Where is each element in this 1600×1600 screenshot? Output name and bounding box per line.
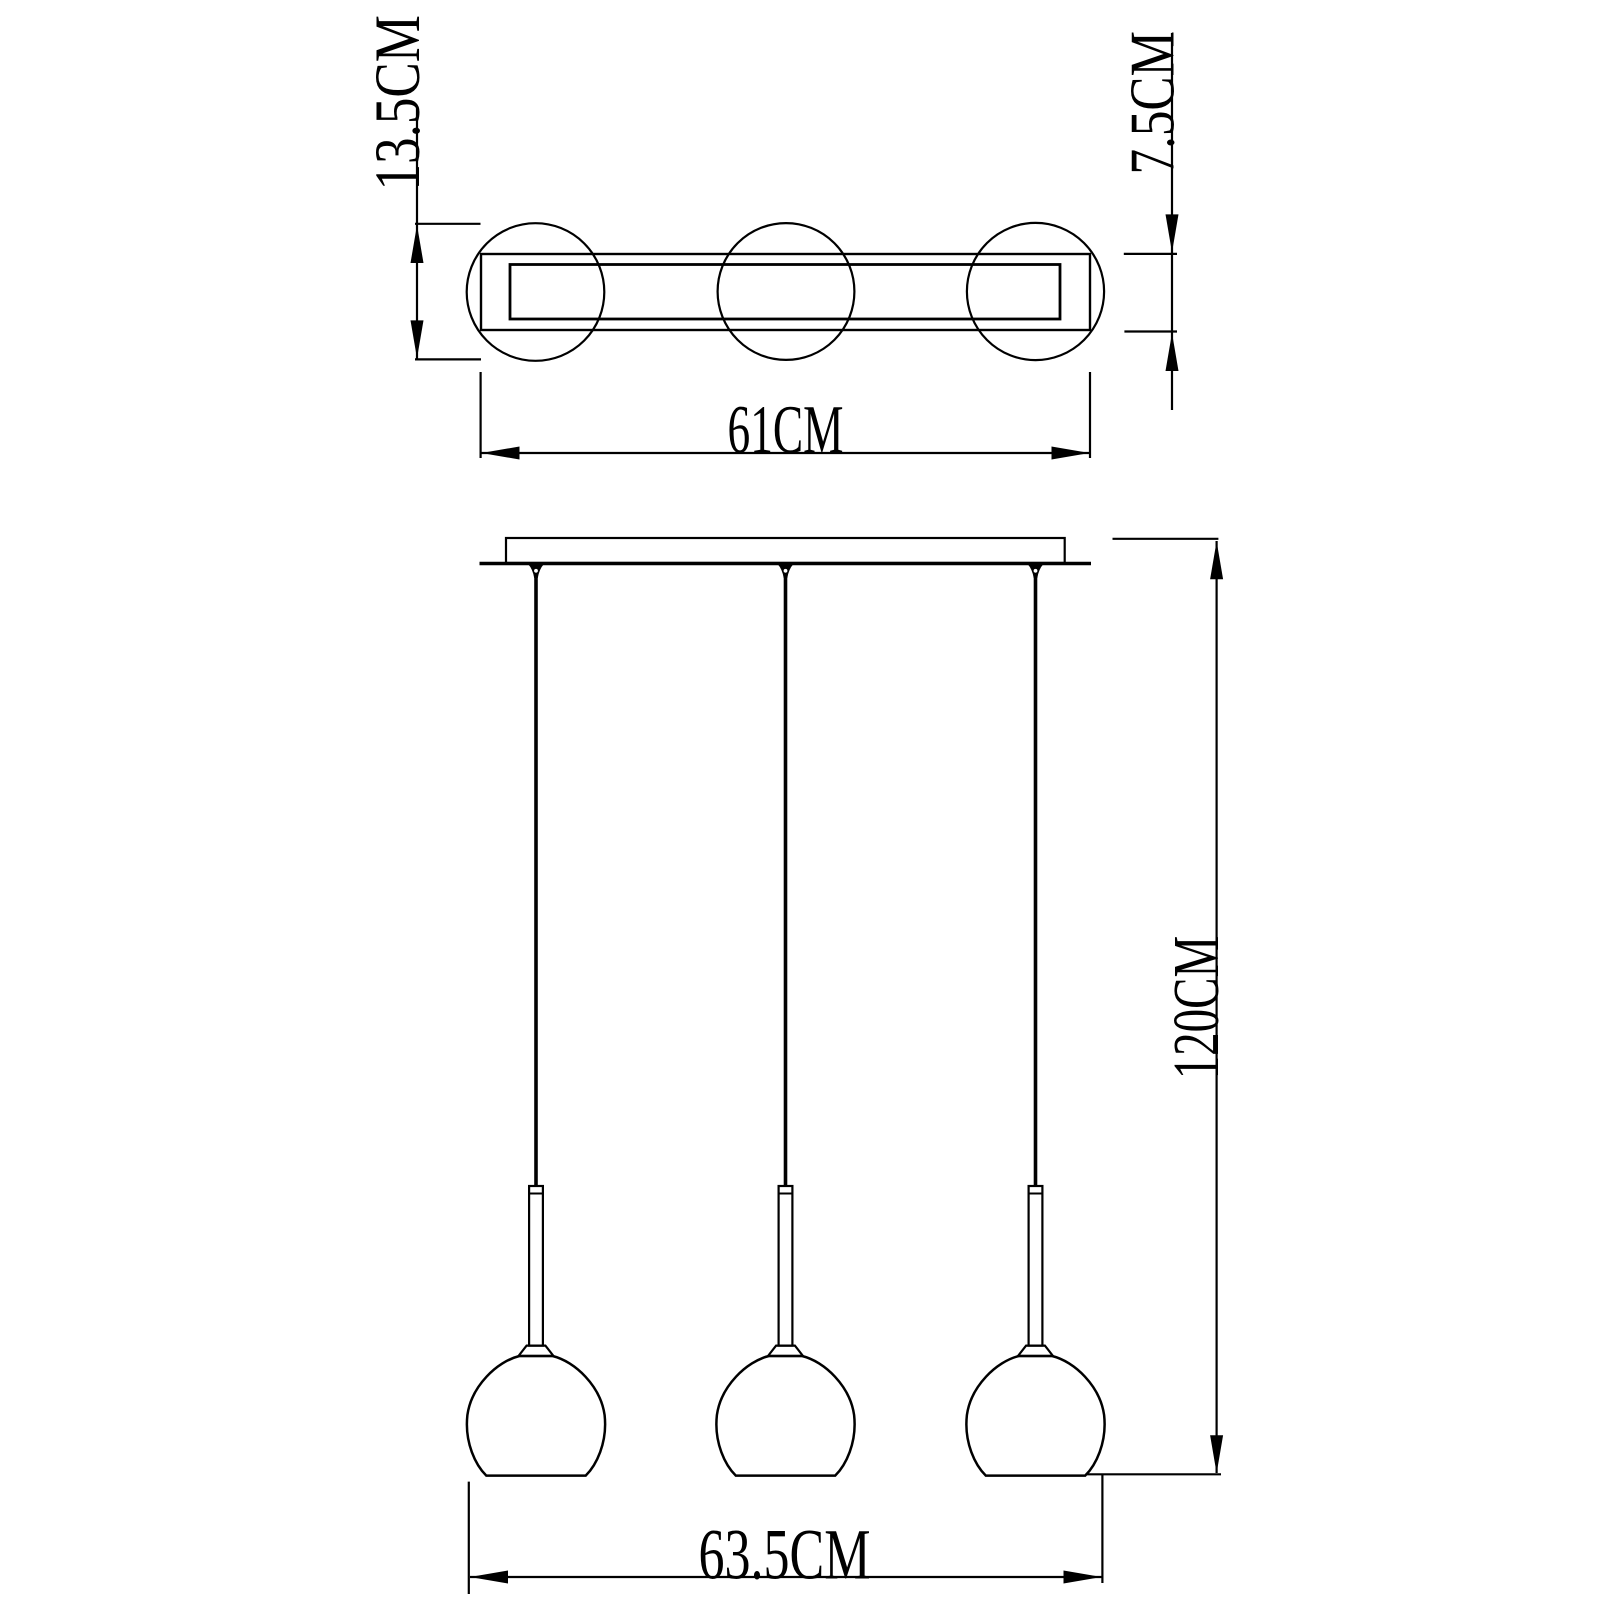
svg-text:13.5CM: 13.5CM [362, 15, 433, 191]
svg-text:61CM: 61CM [728, 391, 844, 467]
svg-text:120CM: 120CM [1161, 936, 1233, 1080]
svg-text:63.5CM: 63.5CM [699, 1516, 871, 1595]
svg-text:7.5CM: 7.5CM [1118, 31, 1188, 175]
